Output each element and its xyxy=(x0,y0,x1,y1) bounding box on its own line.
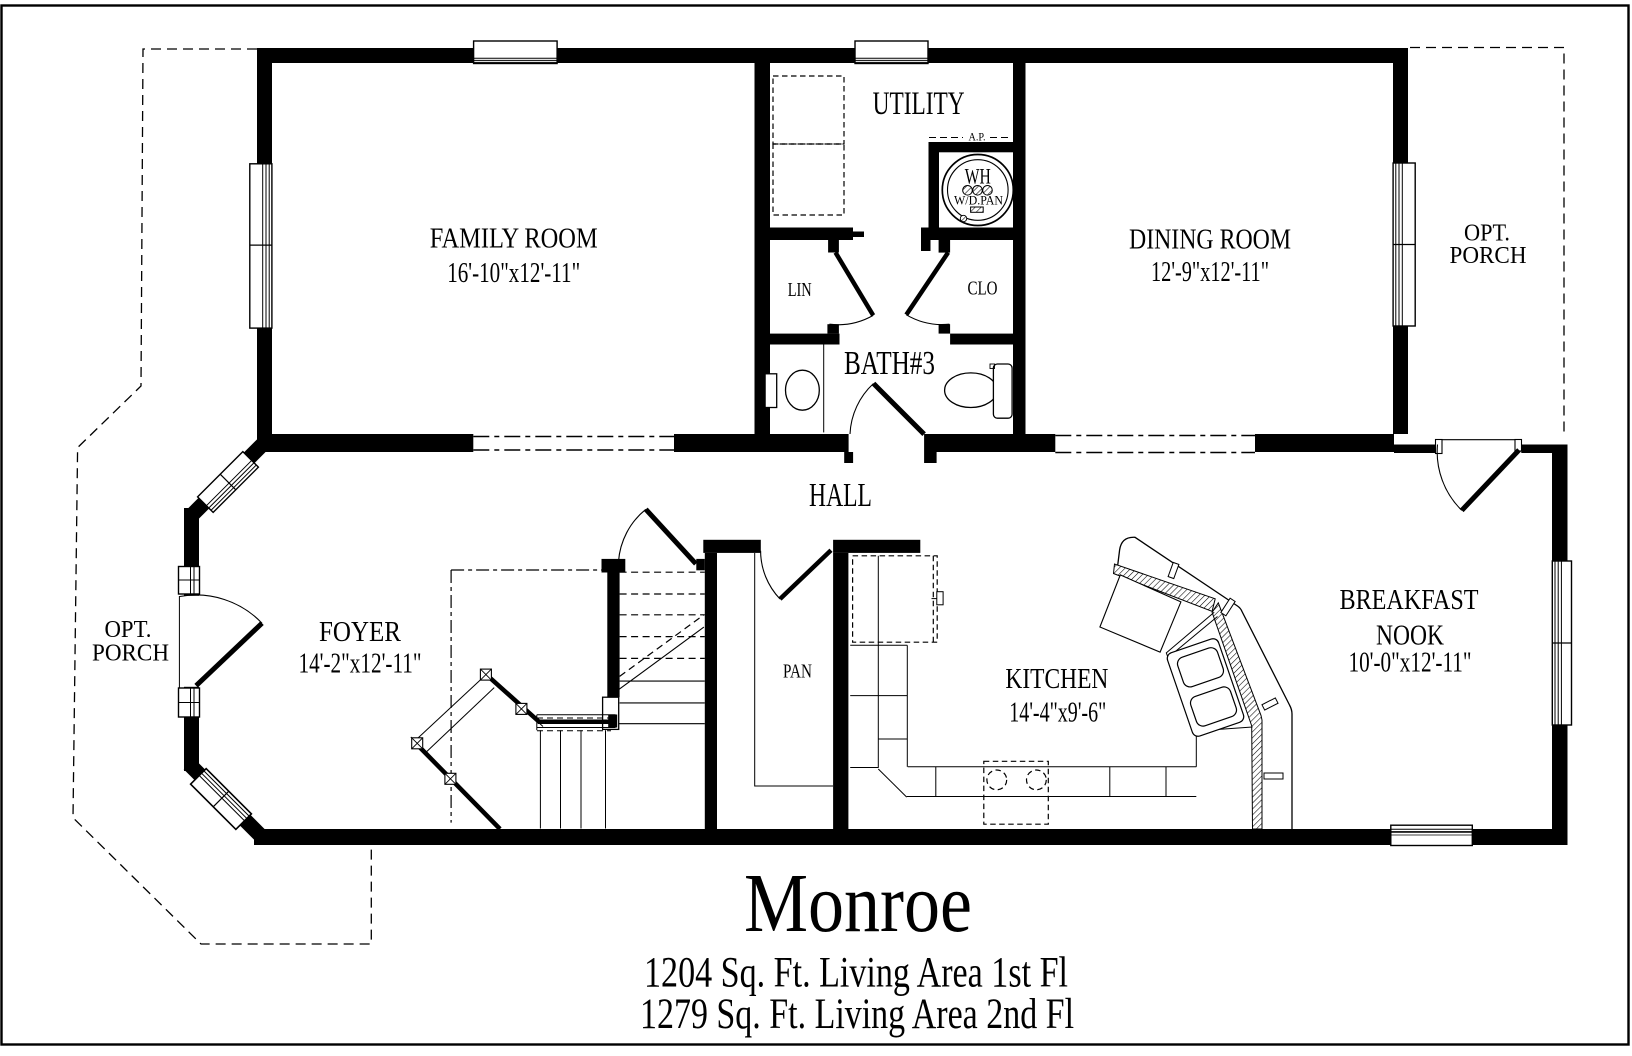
svg-text:16'-10"x12'-11": 16'-10"x12'-11" xyxy=(447,257,580,289)
svg-text:PORCH: PORCH xyxy=(1450,243,1527,269)
svg-text:FOYER: FOYER xyxy=(319,616,402,648)
svg-text:1204 Sq. Ft. Living Area 1st F: 1204 Sq. Ft. Living Area 1st Fl xyxy=(644,950,1068,997)
svg-text:10'-0"x12'-11": 10'-0"x12'-11" xyxy=(1349,647,1472,679)
svg-text:OPT.: OPT. xyxy=(105,617,152,643)
svg-text:1279 Sq. Ft. Living Area 2nd F: 1279 Sq. Ft. Living Area 2nd Fl xyxy=(640,991,1074,1038)
svg-text:DINING ROOM: DINING ROOM xyxy=(1129,224,1291,256)
svg-text:14'-2"x12'-11": 14'-2"x12'-11" xyxy=(299,648,422,680)
svg-text:UTILITY: UTILITY xyxy=(873,86,965,122)
svg-text:CLO: CLO xyxy=(968,278,998,300)
svg-text:PAN: PAN xyxy=(783,661,812,683)
svg-text:HALL: HALL xyxy=(809,477,872,514)
svg-text:BREAKFAST: BREAKFAST xyxy=(1340,584,1479,616)
svg-text:WH: WH xyxy=(965,164,991,189)
svg-text:W/D.PAN: W/D.PAN xyxy=(954,193,1004,208)
svg-text:14'-4"x9'-6": 14'-4"x9'-6" xyxy=(1009,697,1106,729)
svg-text:BATH#3: BATH#3 xyxy=(844,345,935,382)
svg-text:A.P.: A.P. xyxy=(969,132,986,144)
svg-text:LIN: LIN xyxy=(788,279,812,301)
svg-text:12'-9"x12'-11": 12'-9"x12'-11" xyxy=(1151,256,1269,288)
svg-text:FAMILY ROOM: FAMILY ROOM xyxy=(430,223,598,255)
svg-text:PORCH: PORCH xyxy=(92,641,169,667)
svg-text:Monroe: Monroe xyxy=(744,857,972,950)
svg-text:KITCHEN: KITCHEN xyxy=(1005,663,1108,695)
